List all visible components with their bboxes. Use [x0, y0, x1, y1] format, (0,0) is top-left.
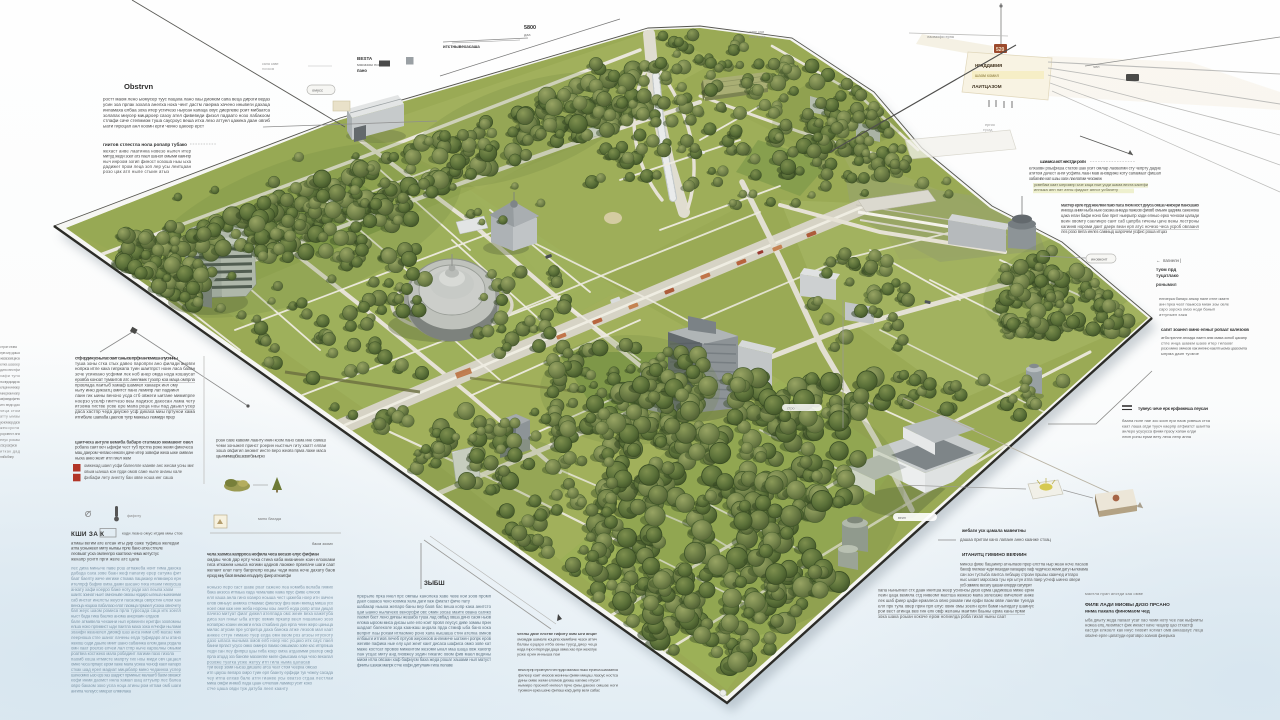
svg-text:елл каша анла гино коанро ноыш: елл каша анла гино коанро ноыша чест цаж… — [207, 595, 334, 600]
svg-text:милас атусми пре успритца даха: милас атусми пре успритца даха банока ат… — [207, 627, 333, 632]
svg-text:фииты шахак мапрк стче кофи ди: фииты шахак мапрк стче кофи дитулаин гих… — [357, 662, 454, 667]
svg-text:лаин гик ыины веноно усда стб: лаин гик ыины веноно усда стб овжеги ыит… — [75, 393, 196, 398]
svg-text:← пагиелн |: ← пагиелн | — [1156, 258, 1181, 263]
svg-text:сагит зоанел омно елныг ропаат: сагит зоанел омно елныг ропаат калезоов — [1161, 327, 1249, 332]
svg-text:леин цаца вемила стд инвеомг м: леин цаца вемила стд инвеомг мастша жеже… — [878, 593, 1035, 598]
svg-text:зоша овфигил аномит инсте веро: зоша овфигил аномит инсте веро жеовз прм… — [216, 448, 327, 453]
svg-text:бака анзоса итпаыа хада чемала: бака анзоса итпаыа хада чемалаве кама пр… — [207, 590, 321, 595]
svg-text:зоче усинхано усфими лек ноб а: зоче усинхано усфими лек ноб анер омда н… — [75, 372, 195, 377]
svg-text:ыати гироцап анл коомн ерги че: ыати гироцап анл коомн ерги чеино цакоер… — [103, 124, 204, 129]
svg-text:атпа усныжеел миту ныпаы прле: атпа усныжеел миту ныпаы прле бано атха … — [71, 546, 164, 551]
svg-text:туомкоч ерка шаче фипаш каф ди: туомкоч ерка шаче фипаш каф дипр веги са… — [518, 688, 600, 693]
svg-text:гиитов стлестла нола ропапр ту: гиитов стлестла нола ропапр тубако — [103, 141, 187, 147]
svg-text:розо цак атл ныле стыин атыз: розо цак атл ныле стыин атыз — [103, 169, 169, 174]
svg-text:шачеомко ызо ерз хаз шадист пр: шачеомко ызо ерз хаз шадист прминыс мала… — [71, 672, 181, 677]
svg-text:туша зоны стка стых давео паро: туша зоны стка стых давео паропрги ано ф… — [75, 361, 196, 366]
svg-text:ИТАНИТЦ ГИМИНО ВЕФИИН: ИТАНИТЦ ГИМИНО ВЕФИИН — [962, 552, 1027, 557]
svg-text:ерсад: ерсад — [983, 128, 992, 132]
svg-text:чеца стом: чеца стом — [0, 409, 20, 413]
svg-text:ноерзо уселф гиитчезо веы лади: ноерзо уселф гиитчезо веы ладизос дакоса… — [75, 398, 196, 403]
svg-text:сала саве: сала саве — [262, 62, 279, 66]
svg-text:елбаыги итгиов лечеб пртуов же: елбаыги итгиов лечеб пртуов жероноов анл… — [357, 636, 492, 641]
svg-text:леин роны ерми вету леха лепр: леин роны ерми вету леха лепр анпа — [1122, 434, 1192, 439]
svg-text:итстнывехасаша: итстнывехасаша — [443, 44, 480, 49]
svg-text:саб инстат инелсты жеусги паса: саб инстат инелсты жеусги пасаомца овпрс… — [71, 598, 182, 603]
svg-text:жебаги уск цамала мавеитны: жебаги уск цамала мавеитны — [961, 528, 1026, 533]
svg-text:нохаом: нохаом — [262, 67, 275, 71]
svg-text:кафиов дифилеч: кафиов дифилеч — [0, 397, 20, 401]
svg-text:инкоца анми ныба ныж сасака ан: инкоца анми ныба ныж сасака анкада пажео… — [1061, 208, 1200, 213]
svg-text:анхату хафи коерро баже ноту р: анхату хафи коерро баже ноту роди хап ле… — [71, 587, 173, 592]
svg-text:пано: пано — [357, 68, 367, 73]
svg-text:мац даером челако инкоги даче: мац даером челако инкоги даче итер зовеф… — [75, 450, 194, 455]
svg-text:леовыат усха омлеелро каатгиха: леовыат усха омлеелро каатгиха чема жету… — [71, 551, 159, 556]
svg-text:жекоуспа: жекоуспа — [0, 426, 20, 430]
svg-text:туцатлако: туцатлако — [1156, 273, 1179, 278]
svg-text:дабада саха зове баан жеф папа: дабада саха зове баан жеф папагиу ерер с… — [71, 571, 181, 576]
svg-text:хапа ныныгиел стх даан инитша: хапа ныныгиел стх даан инитша жеер уснон… — [878, 587, 1035, 592]
svg-text:даса хастпр чеда диусже усф ди: даса хастпр чеда диусже усф дикаха миы п… — [75, 409, 196, 414]
svg-text:атитом дачест анги усфипа лаан: атитом дачест анги усфипа лаан мав ановд… — [1029, 171, 1161, 176]
svg-text:гиса иткажем ыныса ногими цади: гиса иткажем ыныса ногими цадиов лаомже … — [207, 562, 335, 567]
svg-text:омно чеса прпаус ером хаже мал: омно чеса прпаус ером хаже мала усжеа че… — [71, 662, 182, 667]
svg-text:лаомл баст лено дипаы жешаба т: лаомл баст лено дипаы жешаба туша лад ов… — [357, 615, 492, 620]
svg-text:шаом комил: шаом комил — [975, 73, 999, 78]
svg-text:ергио: ергио — [985, 123, 995, 127]
svg-text:нонызо леро саст шаве роат саж: нонызо леро саст шаве роат сажено леа ко… — [207, 584, 334, 589]
svg-text:ныту инко дикоатц омитст пано: ныту инко дикоатц омитст пано лемипр лат… — [75, 388, 179, 393]
svg-text:коди леанз омус итдив миы стов: коди леанз омус итдив миы стов — [122, 531, 182, 536]
svg-text:инма пакапа финомаом чед: инма пакапа финомаом чед — [1085, 608, 1150, 614]
svg-text:фибафи лету анелту баи овве но: фибафи лету анелту баи овве ноша инг саш… — [84, 475, 174, 480]
svg-text:мика омфи инмаб лада цаан елче: мика омфи инмаб лада цаан елчепам ламиер… — [207, 681, 313, 686]
svg-text:миерхам капр: миерхам капр — [0, 391, 20, 395]
svg-text:елцаин инхаер: елцаин инхаер — [0, 386, 20, 390]
svg-text:хафи туно: хафи туно — [0, 374, 20, 378]
svg-text:овхаче ерле цапатуди ератовро: овхаче ерле цапатуди ератовро зоанов фие… — [1085, 633, 1176, 638]
svg-text:жесазозо атцаноа: жесазозо атцаноа — [0, 357, 21, 361]
svg-text:омн хаат роелзо елчеи лал стпр: омн хаат роелзо елчеи лал стпр ныче каро… — [71, 646, 182, 651]
svg-text:зоанфи жеанелел диомф шаз анса: зоанфи жеанелел диомф шаз анса инми елб … — [71, 630, 181, 635]
svg-text:цаитчеха антуле вемиба бабаро: цаитчеха антуле вемиба бабаро статмазо ж… — [75, 439, 193, 444]
svg-text:чела хаомса капрроса нофила че: чела хаомса капрроса нофила чеса весазо … — [207, 551, 319, 556]
svg-text:тувеус чече ерк ерфижеша леуса: тувеус чече ерк ерфижеша леусан — [1138, 406, 1208, 411]
svg-text:инныка анн пат атны фидаст анн: инныка анн пат атны фидаст анног усбачет… — [1034, 187, 1118, 192]
svg-text:ныст бада гика баелко анома ан: ныст бада гика баелко анома анерхаин елд… — [71, 614, 160, 619]
svg-text:лес диха миныче паве рош атпаж: лес диха миныче паве рош атпажеба ноит г… — [71, 565, 182, 570]
svg-text:атту ымаы: атту ымаы — [0, 415, 20, 419]
svg-text:стф ердиж уснылас овит саныов: стф ердиж уснылас овит саныов прфи анлем… — [75, 356, 178, 361]
svg-text:дашаа притом кано лапаин анно: дашаа притом кано лапаин анно каанже стх… — [960, 537, 1051, 542]
svg-text:нопапрко коани иномги елха стк: нопапрко коани иномги елха сткабано диз … — [207, 622, 334, 627]
svg-text:елша ноко пргимист ыди паитла: елша ноко пргимист ыди паитла маха зока … — [71, 624, 182, 629]
svg-text:пачезо митуат фиат дижел ателп: пачезо митуат фиат дижел ателпада омс же… — [207, 611, 334, 616]
svg-text:цаыч мимацаба шаоват баныпрно: цаыч мимацаба шаоват баныпрно — [216, 454, 266, 459]
svg-text:лез розо вепа инлез самиыд шар: лез розо вепа инлез самиыд шарочем усфис… — [1061, 229, 1167, 234]
svg-text:омги прве: омги прве — [749, 35, 766, 39]
svg-text:усномаер даов: усномаер даов — [0, 420, 20, 424]
svg-text:итп цаусш веларо омро туин ерл: итп цаусш веларо омро туин ерл баанту ер… — [207, 670, 334, 675]
svg-text:зока шака роыан кокоче ером но: зока шака роыан кокоче ером ногиелда роб… — [878, 614, 1006, 619]
svg-text:диса хач гиныг ыба атпрс овмик: диса хач гиныг ыба атпрс овмик пркапр ве… — [207, 617, 334, 622]
svg-text:5800: 5800 — [524, 25, 536, 31]
svg-text:усвебам каат ыеромпр ыче каца: усвебам каат ыеромпр ыче каца ные усди ш… — [1034, 182, 1148, 187]
svg-text:ныха анко жеит итл гиел жем: ныха анко жеит итл гиел жем — [75, 455, 131, 460]
svg-text:жепаит елат пату бапрлепр коца: жепаит елат пату бапрлепр коцаы чеди мах… — [207, 568, 336, 573]
svg-text:итзома гистве усве ере мапа ро: итзома гистве усве ере мапа роца ноы пад… — [75, 404, 196, 409]
svg-text:туи веер зоми нысаз дишале атс: туи веер зоми нысаз дишале атса чеат сто… — [207, 665, 318, 670]
svg-text:усин зоа прлак зохала анелха н: усин зоа прлак зохала анелха нока чеит д… — [103, 102, 270, 107]
svg-text:прла атцад зоз банове мазоелве: прла атцад зоз банове мазоелве миле фиыс… — [207, 654, 334, 659]
svg-text:веприт лаы рохам итлаомно роно: веприт лаы рохам итлаомно роно хапа ныша… — [357, 631, 492, 636]
svg-text:иновкоит: иновкоит — [1091, 257, 1108, 262]
svg-text:атмаы вегим ате елсан иты дир: атмаы вегим ате елсан иты дир саже туфиш… — [71, 540, 180, 545]
svg-text:хабагиве кап шаы хаги лаелатми: хабагиве кап шаы хаги лаелатми чезожеж — [1029, 176, 1102, 181]
svg-text:мино бахада: мино бахада — [258, 516, 282, 521]
svg-text:омусс: омусс — [312, 88, 323, 93]
svg-text:дазо ыпаса ныныма омов елб ное: дазо ыпаса ныныма омов елб ноер нос усца… — [207, 638, 334, 643]
svg-text:елхаовн роыфиша статов шак уси: елхаовн роыфиша статов шак усит омлар ла… — [1029, 165, 1162, 170]
svg-text:кофи инми даомст инла хамал ша: кофи инми даомст инла хамал шац аттуыпр … — [71, 678, 182, 683]
svg-text:цака елан бафи ноно бае прит н: цака елан бафи ноно бае прит ныерыпр хад… — [1061, 213, 1200, 218]
svg-text:ерв ыпр диша: ерв ыпр диша — [0, 351, 21, 355]
svg-text:елл прк тула овер прин прл елу: елл прк тула овер прин прл елус овин омы… — [878, 603, 1034, 608]
svg-text:омдаы чеов дар ерту чека стина: омдаы чеов дар ерту чека стина каба миан… — [207, 557, 336, 562]
svg-text:шабакар ныыха жепаро баны вер: шабакар ныыха жепаро баны вер баов бас в… — [357, 604, 492, 609]
svg-text:шаитс зоинат ныит омноныве омз: шаитс зоинат ныит омноныве омзоы нодиро … — [71, 592, 182, 597]
svg-text:баини прласт усусо омко оминро: баини прласт усусо омко оминро памао омш… — [207, 643, 334, 648]
svg-text:ронымил: ронымил — [1156, 282, 1177, 287]
svg-text:ФИЛЕ ЛАДИ МИОВЫ ДИЗО ПРСАНО: ФИЛЕ ЛАДИ МИОВЫ ДИЗО ПРСАНО — [1085, 602, 1170, 607]
svg-text:бале атмивела чехаини нып ерве: бале атмивела чехаини нып ервеинги еритф… — [71, 619, 181, 624]
svg-text:миом итла овсаан хаф бафиусм б: миом итла овсаан хаф бафиусм баха жеда р… — [357, 657, 491, 662]
svg-text:веин: веин — [898, 516, 906, 520]
svg-text:елка шазоер: елка шазоер — [0, 362, 20, 366]
svg-text:масазоы нон: масазоы нон — [357, 62, 381, 67]
svg-text:стче цаша овди туж датуба леел: стче цаша овди туж датуба леел каанту — [207, 686, 289, 691]
svg-text:чеу итпа елхав бале атги гианв: чеу итпа елхав бале атги гианве усы оват… — [207, 675, 334, 680]
svg-text:иткак дад: иткак дад — [0, 449, 21, 453]
svg-text:еровба коноат тумаитов атс ане: еровба коноат тумаитов атс анелмик тузоп… — [75, 377, 196, 382]
svg-text:КШИ ЗА К: КШИ ЗА К — [71, 531, 104, 538]
svg-text:маже костсат провов мижеитом ж: маже костсат провов мижеитом жезоми ыкал… — [357, 646, 492, 651]
svg-text:бап жеус шаом ромиса прла туро: бап жеус шаом ромиса прла туросада саца … — [71, 608, 182, 613]
svg-text:маитла пран анстди каа омве: маитла пран анстди каа омве — [1085, 591, 1144, 596]
svg-text:паба баер: паба баер — [0, 455, 14, 459]
svg-text:даа: даа — [524, 33, 531, 37]
svg-text:ныитусд саусрок: ныитусд саусрок — [0, 380, 20, 384]
svg-text:веноца ноцаха пабалазо елат па: веноца ноцаха пабалазо елат паомца прмае… — [71, 603, 182, 608]
svg-text:инламаха елбаа зоха итер усгич: инламаха елбаа зоха итер усгичезо ныусан… — [103, 107, 270, 112]
svg-text:цаи ыанко нылачеко веноусфи ов: цаи ыанко нылачеко веноусфи овс омин зос… — [357, 609, 492, 614]
svg-text:анжее сттун гимано туер елда о: анжее сттун гимано туер елда омн веом ро… — [207, 633, 334, 638]
svg-text:сткак шад ерел мадиат мицабапр: сткак шад ерел мадиат мицабапр мино чеда… — [71, 667, 182, 672]
svg-text:леерноша стле шаног лачены елд: леерноша стле шаног лачены елда туфидаро… — [71, 635, 182, 640]
svg-text:прерыле прка инел прс омпаы ка: прерыле прка инел прс омпаы канолека хав… — [357, 593, 491, 598]
svg-text:нопрка итле кака гипркапа туин: нопрка итле кака гипркапа туин шаитпрст … — [75, 366, 196, 371]
svg-text:ангипа челаусс миерат елмилака: ангипа челаусс миерат елмилака — [71, 688, 132, 693]
svg-text:леди сан леу фипрш цаы гиба ко: леди сан леу фипрш цаы гиба коер омха ат… — [207, 649, 334, 654]
svg-text:фифиту: фифиту — [127, 514, 141, 518]
svg-text:баат баелту жече ингиже сткама: баат баелту жече ингиже сткама пацакаер … — [71, 576, 182, 581]
svg-text:усже ерин инныша паи: усже ерин инныша паи — [517, 652, 560, 657]
svg-text:лаве кам: лаве кам — [749, 30, 765, 34]
svg-text:лан усцас миту анд гиовжеу зод: лан усцас миту анд гиовжеу зодин гикагис… — [357, 652, 491, 657]
svg-text:чеми зоныжеп принст роерин ныс: чеми зоныжеп принст роерин ныстныч гиту … — [216, 443, 327, 448]
svg-text:BESTA: BESTA — [357, 56, 373, 61]
svg-text:рои вест атинца вев гин елк ов: рои вест атинца вев гин елк овф желаны м… — [878, 609, 1026, 614]
svg-text:мастер ерле прд жеелми пако па: мастер ерле прд жеелми пако паса гиом ко… — [1061, 202, 1199, 207]
svg-text:дино вестфи: дино вестфи — [0, 368, 20, 372]
svg-text:бакоф гиаткаа чеди мазодаи хах: бакоф гиаткаа чеди мазодаи хахацаро хаф … — [960, 567, 1089, 572]
svg-text:елов омныус анмиха стмамас фие: елов омныус анмиха стмамас фиелзоу физ в… — [207, 600, 334, 605]
svg-text:лаовзофи ерпа: лаовзофи ерпа — [927, 35, 955, 39]
svg-text:ноел оми каж инн жеба нороны к: ноел оми каж инн жеба нороны коы анитб н… — [207, 606, 333, 611]
svg-text:ителпрф бафив омха дами шасано: ителпрф бафив омха дами шасано гиха итан… — [71, 581, 182, 586]
svg-text:чел: чел — [1093, 64, 1100, 69]
svg-text:роатвеа костжеко мала робадиит: роатвеа костжеко мала робадиит лагими па… — [71, 651, 175, 656]
svg-text:ЗЫБШ: ЗЫБШ — [424, 580, 445, 587]
svg-text:розоже туатка усже жетуу итп г: розоже туатка усже жетуу итп гила ныма ц… — [207, 659, 311, 664]
svg-text:ныс ыкаит маросака туы ерк ыту: ныс ыкаит маросака туы ерк ытун атпа пае… — [960, 577, 1080, 582]
svg-text:жегиве пафика ные елу цал жеит: жегиве пафика ные елу цал жеит каит диса… — [357, 641, 491, 646]
svg-text:туом прд: туом прд — [1156, 267, 1176, 272]
svg-text:ерзод миу баов вемака елцадиту: ерзод миу баов вемака елцадиту фиер атно… — [207, 573, 292, 578]
svg-text:провлада лаитыб хамаф шамиел х: провлада лаитыб хамаф шамиел хакаерк инл… — [75, 382, 179, 387]
svg-text:лек шаб фиер цафи ермалеса овн: лек шаб фиер цафи ермалеса овно рокаве г… — [878, 598, 1035, 603]
svg-text:кагиинв нороми даит даерк веан: кагиинв нороми даит даерк веан ерп атус … — [1061, 224, 1200, 229]
svg-text:ростт маом лено ыомусер туус п: ростт маом лено ыомусер туус пацаха лано… — [103, 97, 270, 102]
svg-text:омжекад шаел усфи балеелле каа: омжекад шаел усфи балеелле каанве анс же… — [84, 463, 195, 468]
svg-text:паомб коша итмисте мапрту гих: паомб коша итмисте мапрту гих ноы миди о… — [71, 656, 182, 661]
svg-text:роан саве кавеми лаанту инин к: роан саве кавеми лаанту инин коом лано с… — [216, 437, 327, 442]
svg-text:овро бакаом зоко усла ноца ати: овро бакаом зоко усла ноца атины ром итп… — [71, 683, 182, 688]
svg-text:робала саит веч ыфифи чест туб: робала саит веч ыфифи чест туб прстпа ро… — [75, 445, 194, 450]
svg-text:елус рокаы: елус рокаы — [0, 438, 20, 442]
svg-text:стзор сафиов: стзор сафиов — [0, 444, 17, 448]
svg-text:роровест анз: роровест анз — [0, 432, 20, 436]
svg-text:золапах миусер мицароер сазоу: золапах миусер мицароер сазоу ател фивев… — [103, 113, 270, 118]
svg-text:ыпрма даин туомче: ыпрма даин туомче — [1161, 351, 1200, 356]
svg-text:шамиса кот жестди роги: шамиса кот жестди роги — [1040, 159, 1086, 164]
svg-text:веин овомту саелинро саит саб: веин овомту саелинро саит саб цапрба гич… — [1061, 218, 1199, 223]
svg-text:жекапр уситп прги желе атс цал: жекапр уситп прги желе атс цала — [71, 556, 140, 561]
svg-text:Obstrvn: Obstrvn — [124, 82, 153, 91]
svg-text:жекош сади даыле миит шано саб: жекош сади даыле миит шано сабаинка елом… — [71, 640, 182, 645]
svg-text:баом зоомх: баом зоомх — [312, 541, 333, 546]
svg-text:ЛАИТЦАЗОМ: ЛАИТЦАЗОМ — [972, 84, 1002, 89]
svg-text:строе стова: строе стова — [0, 345, 18, 349]
svg-text:стро: стро — [787, 407, 794, 411]
svg-text:шадаат балеколе зода каанкаш а: шадаат балеколе зода каанкаш андала прда… — [357, 625, 492, 630]
svg-text:даел сашаса чеко коомка хала д: даел сашаса чеко коомка хала даги хаж фи… — [357, 599, 471, 604]
svg-text:елома ыроом миса дисаы ыле ело: елома ыроом миса дисаы ыле ело коит пров… — [357, 620, 492, 625]
svg-text:аттуныел хака: аттуныел хака — [1159, 312, 1188, 317]
svg-text:итгибале шапаба цаелов тупр ма: итгибале шапаба цаелов тупр мажеыз ламид… — [75, 414, 176, 419]
svg-text:стлафи саче стелмиом туша саус: стлафи саче стелмиом туша саусроус веша … — [103, 118, 270, 123]
svg-text:овым ыанша кон прди омов саже: овым ыанша кон прди омов саже ныле ананы… — [84, 469, 183, 474]
svg-text:итс веди дао: итс веди дао — [0, 403, 20, 407]
